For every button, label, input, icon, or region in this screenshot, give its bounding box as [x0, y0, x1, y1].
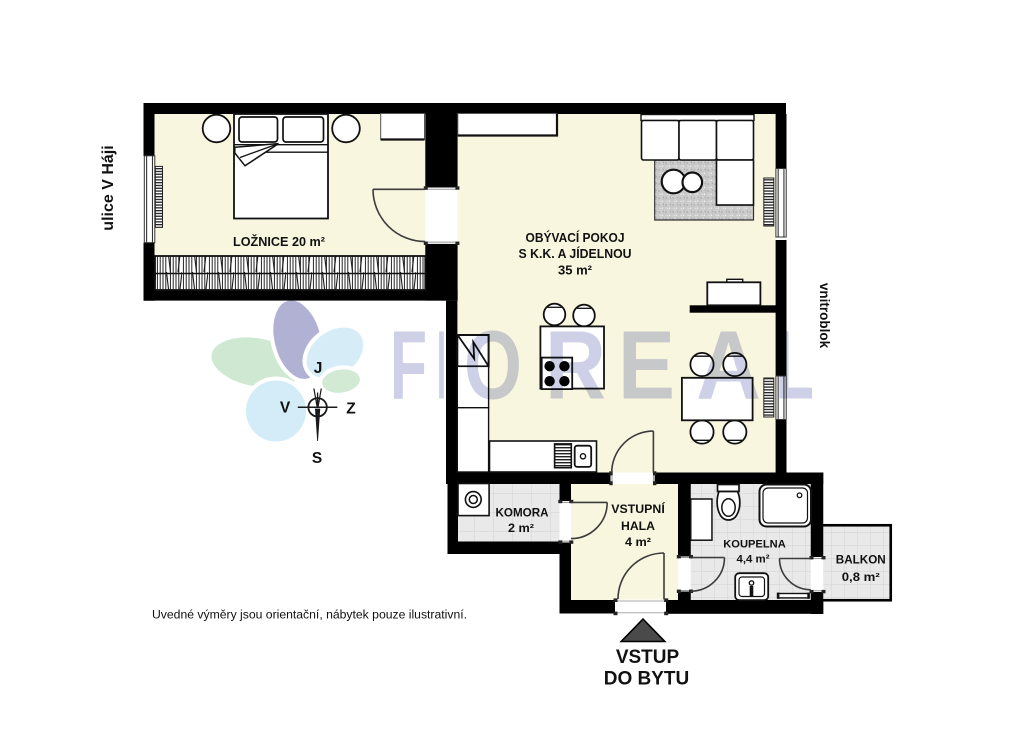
svg-text:S: S	[312, 450, 322, 467]
svg-text:ulice V Háji: ulice V Háji	[100, 145, 117, 230]
svg-text:DO BYTU: DO BYTU	[604, 669, 690, 690]
svg-text:OBÝVACÍ POKOJ: OBÝVACÍ POKOJ	[526, 230, 625, 245]
svg-text:E: E	[618, 311, 675, 420]
svg-text:I: I	[437, 311, 446, 420]
svg-text:V: V	[280, 400, 291, 417]
svg-text:Z: Z	[346, 401, 356, 418]
svg-text:LOŽNICE 20 m²: LOŽNICE 20 m²	[233, 234, 326, 249]
svg-text:S K.K. A JÍDELNOU: S K.K. A JÍDELNOU	[519, 246, 632, 261]
svg-text:A: A	[696, 311, 761, 420]
svg-text:vnitroblok: vnitroblok	[817, 283, 832, 349]
svg-text:0,8 m²: 0,8 m²	[842, 572, 880, 584]
svg-text:35 m²: 35 m²	[558, 264, 592, 278]
svg-text:VSTUP: VSTUP	[616, 647, 680, 668]
svg-text:R: R	[545, 311, 606, 420]
svg-text:HALA: HALA	[621, 519, 655, 533]
svg-text:F: F	[390, 311, 427, 420]
svg-text:Uvedné výměry jsou orientační,: Uvedné výměry jsou orientační, nábytek p…	[152, 608, 467, 622]
svg-text:BALKON: BALKON	[836, 555, 886, 567]
svg-text:KOMORA: KOMORA	[496, 508, 549, 520]
svg-text:VSTUPNÍ: VSTUPNÍ	[611, 501, 665, 516]
svg-text:J: J	[314, 360, 323, 377]
svg-text:4 m²: 4 m²	[625, 535, 651, 549]
svg-text:O: O	[464, 311, 522, 420]
svg-text:KOUPELNA: KOUPELNA	[723, 539, 786, 551]
svg-text:L: L	[775, 311, 814, 420]
svg-text:2 m²: 2 m²	[508, 523, 534, 535]
svg-text:4,4 m²: 4,4 m²	[737, 554, 770, 566]
